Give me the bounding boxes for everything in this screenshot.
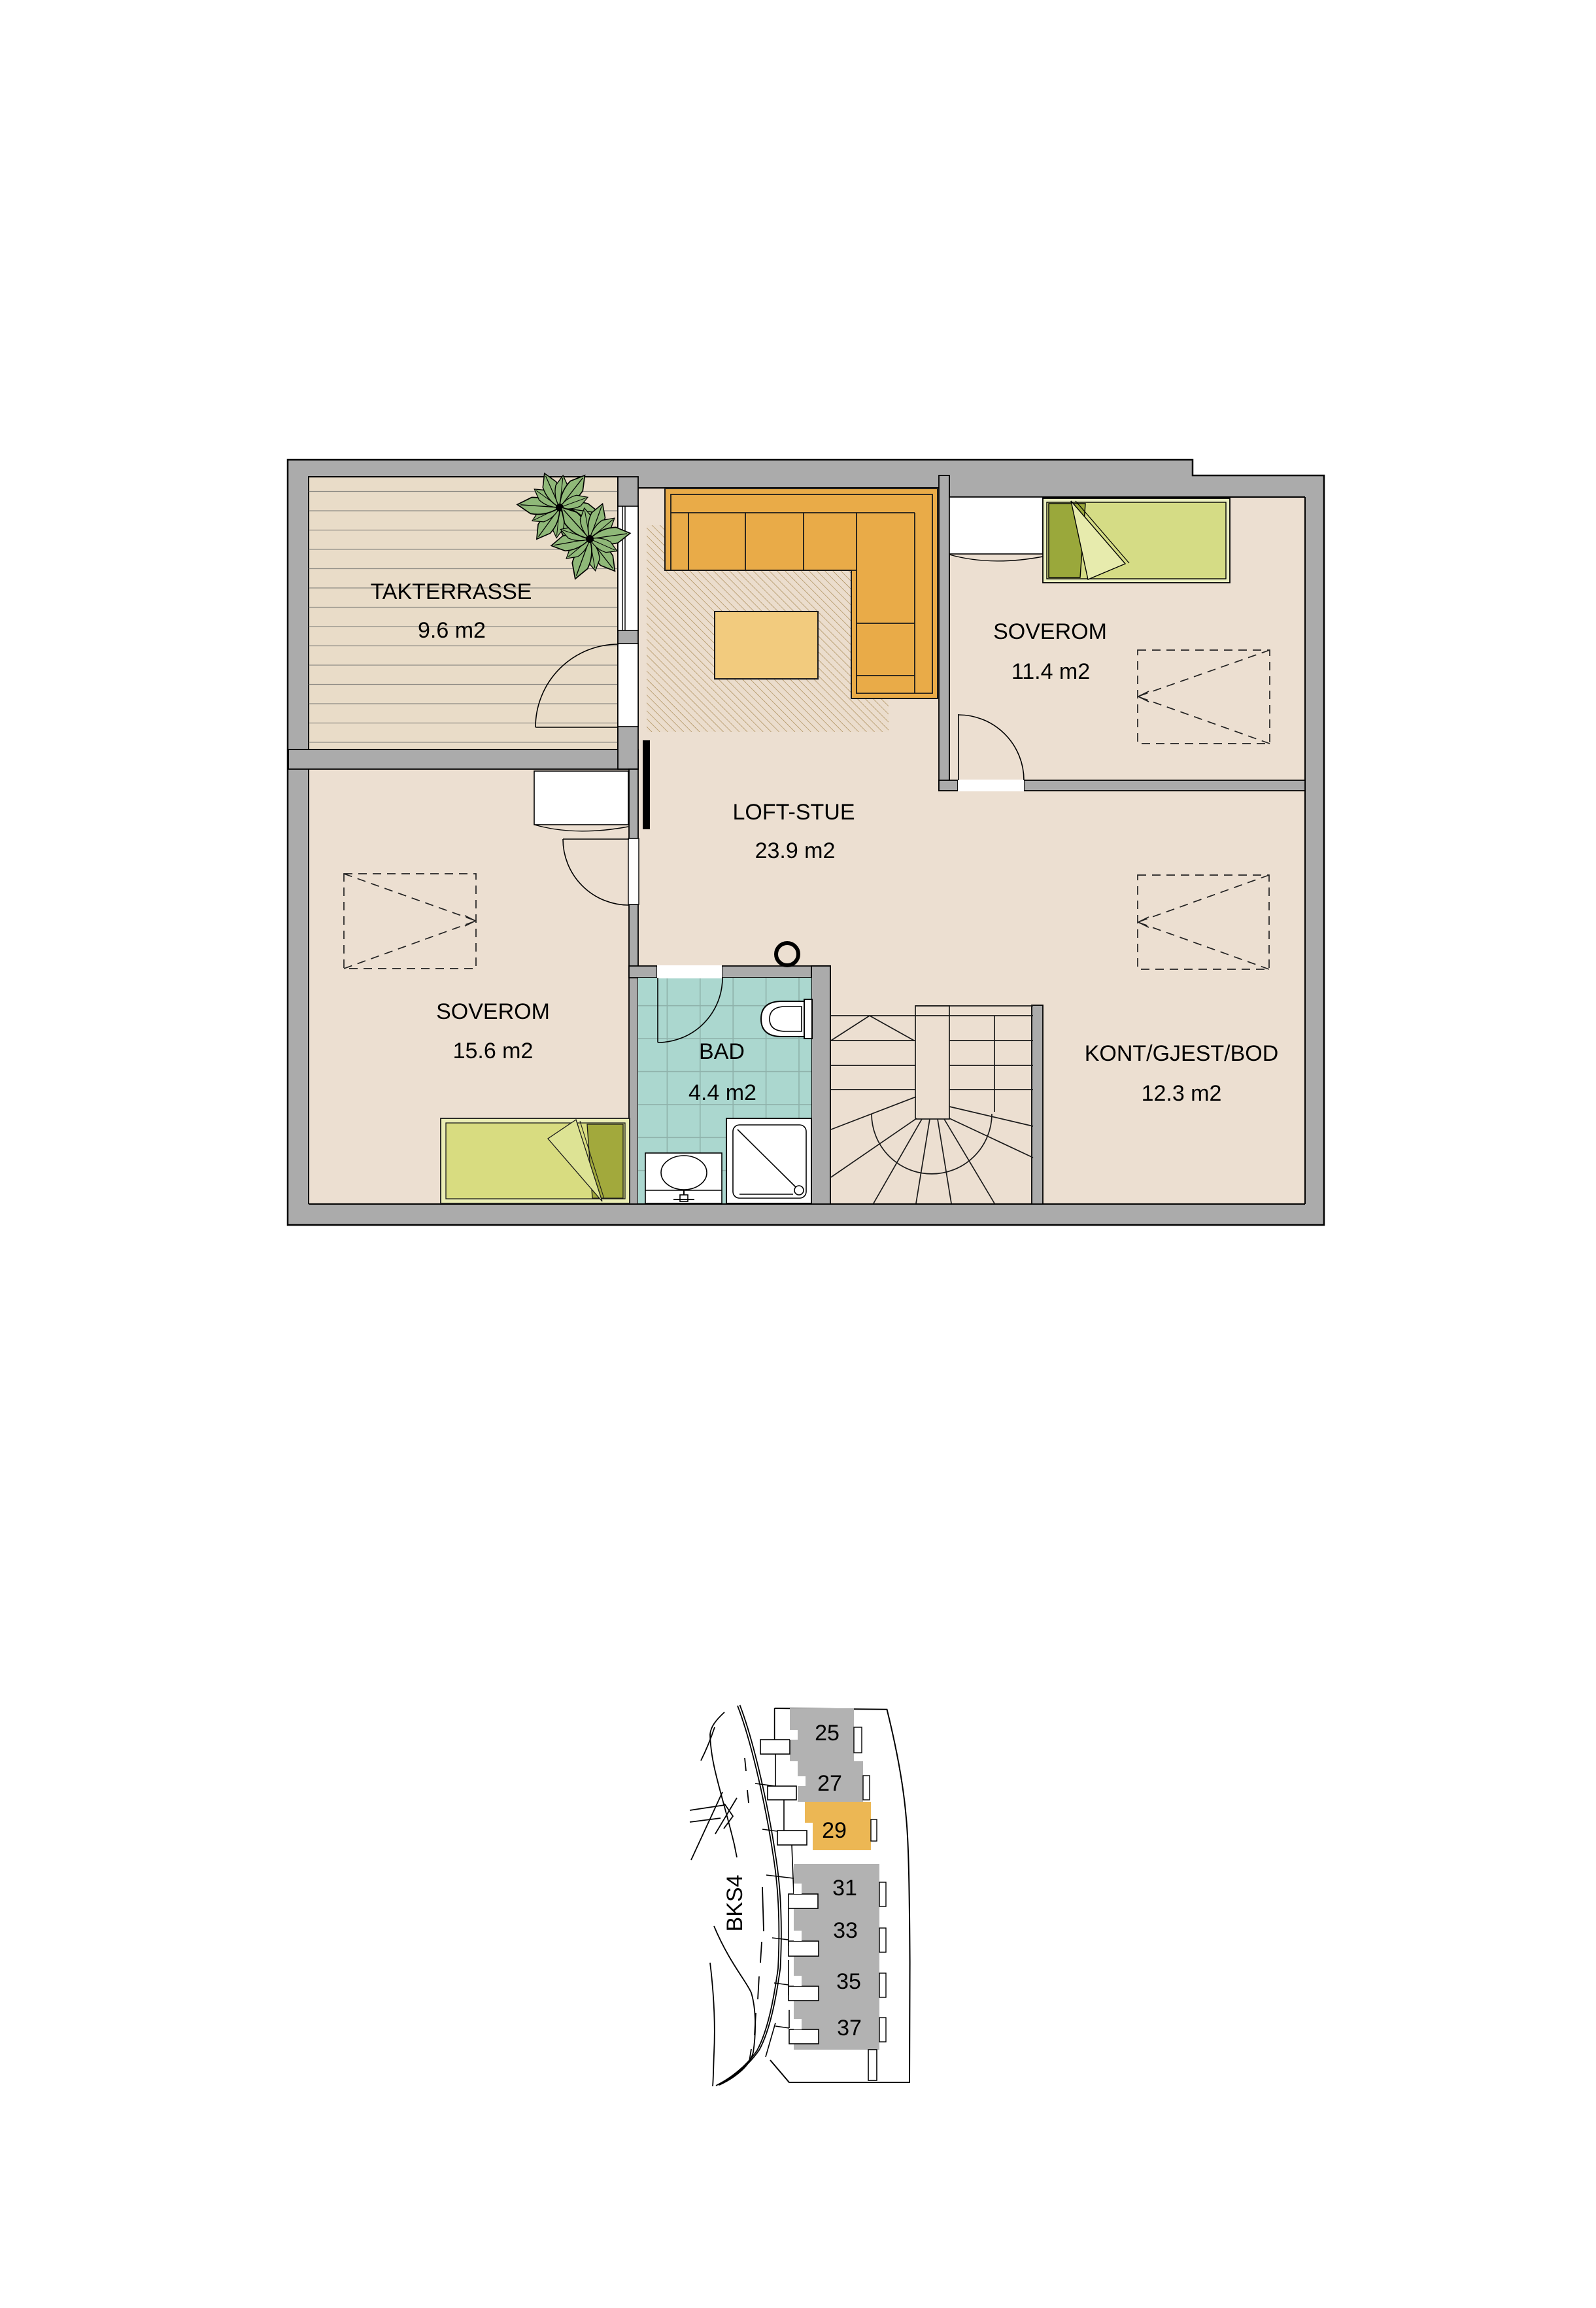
svg-text:31: 31 <box>832 1876 857 1901</box>
svg-text:SOVEROM: SOVEROM <box>993 619 1107 644</box>
svg-text:BAD: BAD <box>699 1039 745 1064</box>
svg-text:33: 33 <box>833 1918 858 1943</box>
svg-text:27: 27 <box>817 1771 842 1796</box>
svg-text:4.4 m2: 4.4 m2 <box>688 1080 756 1105</box>
svg-text:12.3 m2: 12.3 m2 <box>1142 1081 1222 1106</box>
svg-text:15.6 m2: 15.6 m2 <box>453 1039 534 1063</box>
svg-text:SOVEROM: SOVEROM <box>436 999 550 1024</box>
svg-text:9.6 m2: 9.6 m2 <box>418 618 486 643</box>
svg-text:LOFT-STUE: LOFT-STUE <box>732 800 855 825</box>
svg-text:BKS4: BKS4 <box>722 1875 747 1932</box>
svg-text:25: 25 <box>815 1721 840 1746</box>
svg-text:23.9 m2: 23.9 m2 <box>755 838 836 863</box>
svg-text:35: 35 <box>836 1969 861 1994</box>
svg-text:37: 37 <box>837 2016 862 2041</box>
svg-text:29: 29 <box>822 1818 847 1843</box>
svg-text:11.4 m2: 11.4 m2 <box>1011 659 1090 684</box>
svg-text:TAKTERRASSE: TAKTERRASSE <box>371 579 532 604</box>
svg-text:KONT/GJEST/BOD: KONT/GJEST/BOD <box>1085 1041 1279 1066</box>
